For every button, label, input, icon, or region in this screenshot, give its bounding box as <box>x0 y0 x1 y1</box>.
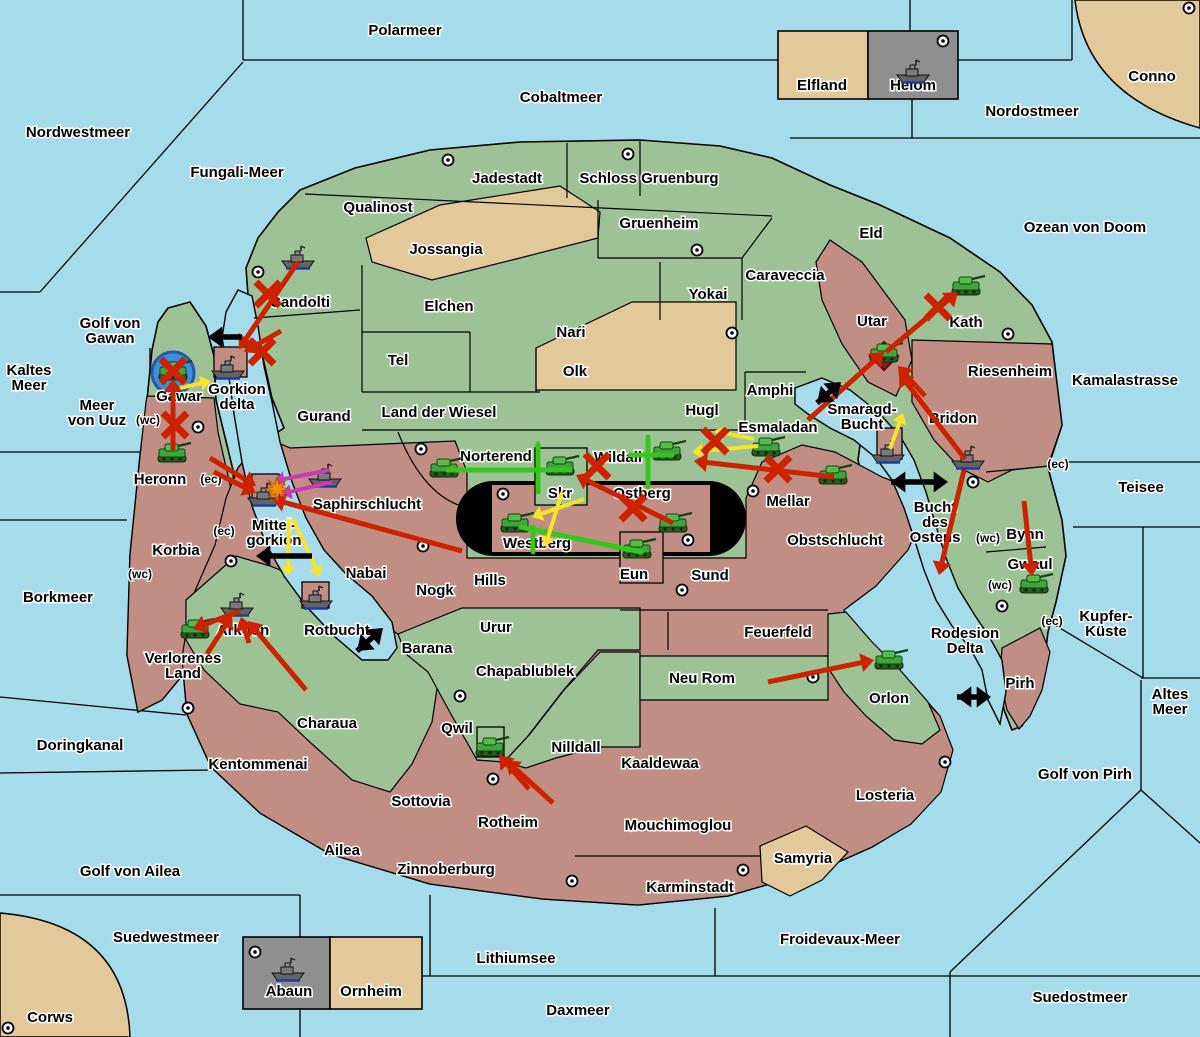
sea-label: Kamalastrasse <box>1072 372 1178 389</box>
supply-center-core <box>1000 604 1004 608</box>
supply-center-core <box>971 480 975 484</box>
region-label: Mellar <box>766 493 810 510</box>
region-label: Pirh <box>1005 675 1034 692</box>
coast-label: (ec) <box>1047 457 1068 471</box>
supply-center-core <box>626 152 630 156</box>
region-label: Elchen <box>424 298 473 315</box>
sea-label: Ozean von Doom <box>1024 219 1147 236</box>
combat-burst-icon <box>265 477 289 501</box>
region-label: Jadestadt <box>472 170 542 187</box>
region-label: Amphi <box>747 382 794 399</box>
supply-center-core <box>1006 332 1010 336</box>
coast-label: (wc) <box>128 567 152 581</box>
supply-center-core <box>419 447 423 451</box>
supply-center-core <box>943 760 947 764</box>
panel-label-elfland: Elfland <box>797 77 847 94</box>
supply-center-core <box>941 39 945 43</box>
region-label: Esmaladan <box>738 419 817 436</box>
sea-label: AltesMeer <box>1152 686 1189 718</box>
supply-center-core <box>1187 6 1191 10</box>
sea-label: Teisee <box>1118 479 1164 496</box>
coast-label: (wc) <box>136 413 160 427</box>
region-label: Ailea <box>324 842 361 859</box>
supply-center-core <box>695 248 699 252</box>
sea-label: KaltesMeer <box>6 362 51 394</box>
region-label: Jossangia <box>409 241 483 258</box>
region-label: Rotheim <box>478 814 538 831</box>
region-label: Kentommenai <box>208 756 307 773</box>
region-label: Neu Rom <box>669 670 735 687</box>
sea-label: Doringkanal <box>37 737 124 754</box>
sea-label: Daxmeer <box>546 1002 610 1019</box>
region-label: Caraveccia <box>745 267 825 284</box>
panel-label-abaun: Abaun <box>266 983 313 1000</box>
sea-label: Rotbucht <box>304 622 370 639</box>
coast-label: (ec) <box>213 524 234 538</box>
coast-label: (wc) <box>976 531 1000 545</box>
supply-center-core <box>570 879 574 883</box>
sea-label: Lithiumsee <box>476 950 555 967</box>
supply-center-core <box>458 694 462 698</box>
region-label: Norterend <box>460 448 532 465</box>
supply-center-core <box>730 331 734 335</box>
sea-label: Borkmeer <box>23 589 93 606</box>
supply-center-core <box>751 489 755 493</box>
supply-center-core <box>741 868 745 872</box>
region-label: Kath <box>949 314 982 331</box>
region-label: Obstschlucht <box>787 532 883 549</box>
supply-center-core <box>491 777 495 781</box>
sea-label: Nordwestmeer <box>26 124 130 141</box>
region-label: Hugl <box>685 402 718 419</box>
sea-label: Golf von Ailea <box>80 863 181 880</box>
sea-label: Kupfer-Küste <box>1079 608 1132 640</box>
region-label: Samyria <box>774 850 833 867</box>
region-label: Kaaldewaa <box>621 755 699 772</box>
sea-label: Suedostmeer <box>1032 989 1127 1006</box>
region-label: Saphirschlucht <box>313 496 421 513</box>
region-label: Yokai <box>689 286 728 303</box>
sea-label: Suedwestmeer <box>113 929 219 946</box>
coast-label: (wc) <box>988 578 1012 592</box>
sea-label: Corws <box>27 1009 73 1026</box>
region-label: Chapablublek <box>476 663 575 680</box>
region-label: Feuerfeld <box>744 624 812 641</box>
region-label: Sottovia <box>391 793 451 810</box>
supply-center-core <box>6 1026 10 1030</box>
sea-label: Golf von Pirh <box>1038 766 1132 783</box>
region-label: Schloss Gruenburg <box>579 170 718 187</box>
region-label: Hills <box>474 572 506 589</box>
region-label: Land der Wiesel <box>382 404 497 421</box>
coast-label: (ec) <box>1041 614 1062 628</box>
region-label: Mouchimoglou <box>625 817 732 834</box>
region-label: Olk <box>563 363 588 380</box>
supply-center-core <box>501 492 505 496</box>
supply-center-core <box>421 544 425 548</box>
sea-label: Polarmeer <box>368 22 442 39</box>
sea-label: Conno <box>1128 68 1175 85</box>
region-label: Nilldall <box>551 739 600 756</box>
supply-center-core <box>253 950 257 954</box>
region-label: Losteria <box>856 787 915 804</box>
order-arrow <box>288 519 289 572</box>
region-label: Charaua <box>297 715 358 732</box>
region-label: Heronn <box>134 471 187 488</box>
sea-label: Golf vonGawan <box>80 315 141 347</box>
region-label: Nari <box>556 324 585 341</box>
supply-center-core <box>196 425 200 429</box>
region-label: Urur <box>480 619 512 636</box>
region-label: Korbia <box>152 542 200 559</box>
region-label: Qualinost <box>343 199 412 216</box>
panel-label-ornheim: Ornheim <box>340 983 402 1000</box>
sea-label: Nordostmeer <box>985 103 1079 120</box>
sea-label: Cobaltmeer <box>520 89 603 106</box>
region-label: Utar <box>857 313 887 330</box>
region-label: Riesenheim <box>968 363 1052 380</box>
region-label: Nabai <box>346 565 387 582</box>
region-label: Eun <box>620 566 648 583</box>
game-map[interactable]: PolarmeerCobaltmeerNordostmeerConnoNordw… <box>0 0 1200 1037</box>
supply-center-core <box>811 675 815 679</box>
supply-center-core <box>256 270 260 274</box>
region-label: Sund <box>691 567 729 584</box>
supply-center-core <box>680 588 684 592</box>
region-label: Gruenheim <box>619 215 698 232</box>
region-label: Nogk <box>416 582 454 599</box>
region-label: Eld <box>859 225 882 242</box>
region-label: Tel <box>388 352 409 369</box>
region-label: Qwil <box>441 720 473 737</box>
region-label: Gurand <box>297 408 350 425</box>
supply-center-core <box>686 538 690 542</box>
region-label: Zinnoberburg <box>397 861 495 878</box>
sea-label: Fungali-Meer <box>190 164 284 181</box>
supply-center-core <box>229 559 233 563</box>
region-label: Karminstadt <box>646 879 734 896</box>
game-map-stage: PolarmeerCobaltmeerNordostmeerConnoNordw… <box>0 0 1200 1037</box>
supply-center-core <box>186 706 190 710</box>
region-label: Barana <box>402 640 454 657</box>
sea-label: Froidevaux-Meer <box>780 931 900 948</box>
region-label: Orlon <box>869 690 909 707</box>
supply-center-core <box>446 158 450 162</box>
